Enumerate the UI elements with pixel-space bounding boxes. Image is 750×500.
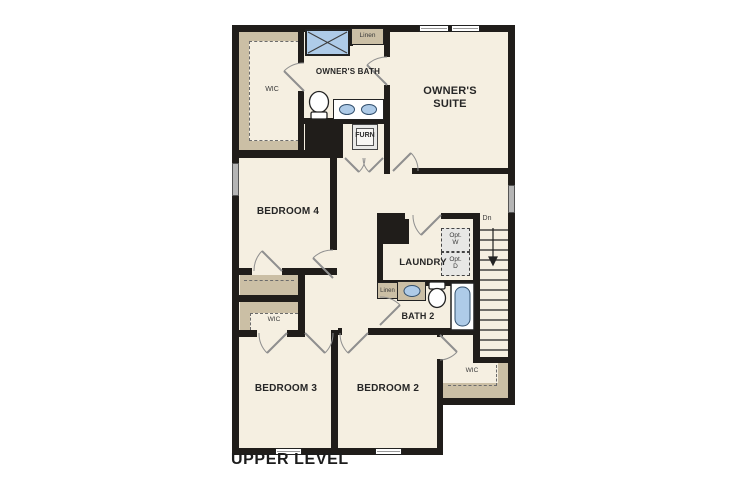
linen-closet-hall: Linen (377, 282, 398, 299)
stairs-down-label: Dn (478, 215, 496, 222)
owners-wic-label: WIC (247, 86, 297, 93)
floor-plan-page: { "title": { "label": "UPPER LEVEL" }, "… (0, 0, 750, 500)
bedroom4-label: BEDROOM 4 (240, 206, 336, 218)
wall (384, 25, 390, 57)
wall (287, 330, 305, 337)
shower (305, 29, 350, 56)
wall (232, 295, 305, 302)
linen-upper-label: Linen (360, 33, 376, 40)
wall (338, 328, 342, 335)
window (232, 163, 239, 196)
bath2-label: BATH 2 (388, 311, 448, 321)
window (419, 25, 449, 32)
wall (384, 85, 390, 174)
bedroom2-wic-label: WIC (452, 368, 492, 375)
linen-hall-label: Linen (380, 288, 395, 294)
wall (298, 32, 304, 63)
window (451, 25, 480, 32)
wall (331, 330, 338, 448)
closet-rod-dash (244, 280, 294, 281)
opt-washer-line2: W (452, 240, 458, 247)
owners-bath-label: OWNER'S BATH (310, 67, 386, 76)
furnace-label: FURN (346, 132, 384, 139)
wall (508, 25, 515, 405)
floor-plan: Linen Linen Opt. W Opt. D (232, 25, 515, 455)
wall (330, 155, 337, 250)
wall (441, 213, 473, 219)
plan-title: UPPER LEVEL (231, 451, 349, 469)
bedroom2-label: BEDROOM 2 (342, 383, 434, 395)
wall (232, 25, 239, 455)
wall (232, 150, 308, 158)
wall (232, 330, 257, 337)
owners-suite-label: OWNER'S SUITE (410, 85, 490, 111)
bedroom3-label: BEDROOM 3 (240, 383, 332, 395)
window (508, 185, 515, 213)
window (375, 448, 402, 455)
wall (298, 268, 305, 337)
wall (473, 213, 480, 357)
wall (232, 268, 252, 275)
wall (368, 328, 477, 335)
linen-closet-upper: Linen (351, 28, 384, 45)
laundry-chase (383, 219, 409, 244)
mechanical-chase (305, 120, 343, 158)
vanity-double-sink (333, 99, 384, 120)
optional-washer: Opt. W (441, 228, 470, 252)
laundry-label: LAUNDRY (383, 257, 463, 268)
bedroom4-closet-shelf (240, 275, 298, 295)
floor-area-bedrooms (239, 398, 437, 448)
wall (437, 398, 515, 405)
wall (282, 268, 337, 275)
bedroom3-wic-label: WIC (254, 317, 294, 324)
wall (437, 359, 443, 455)
bath2-sink-counter (397, 281, 426, 301)
wall (473, 357, 515, 363)
wall (412, 168, 508, 174)
